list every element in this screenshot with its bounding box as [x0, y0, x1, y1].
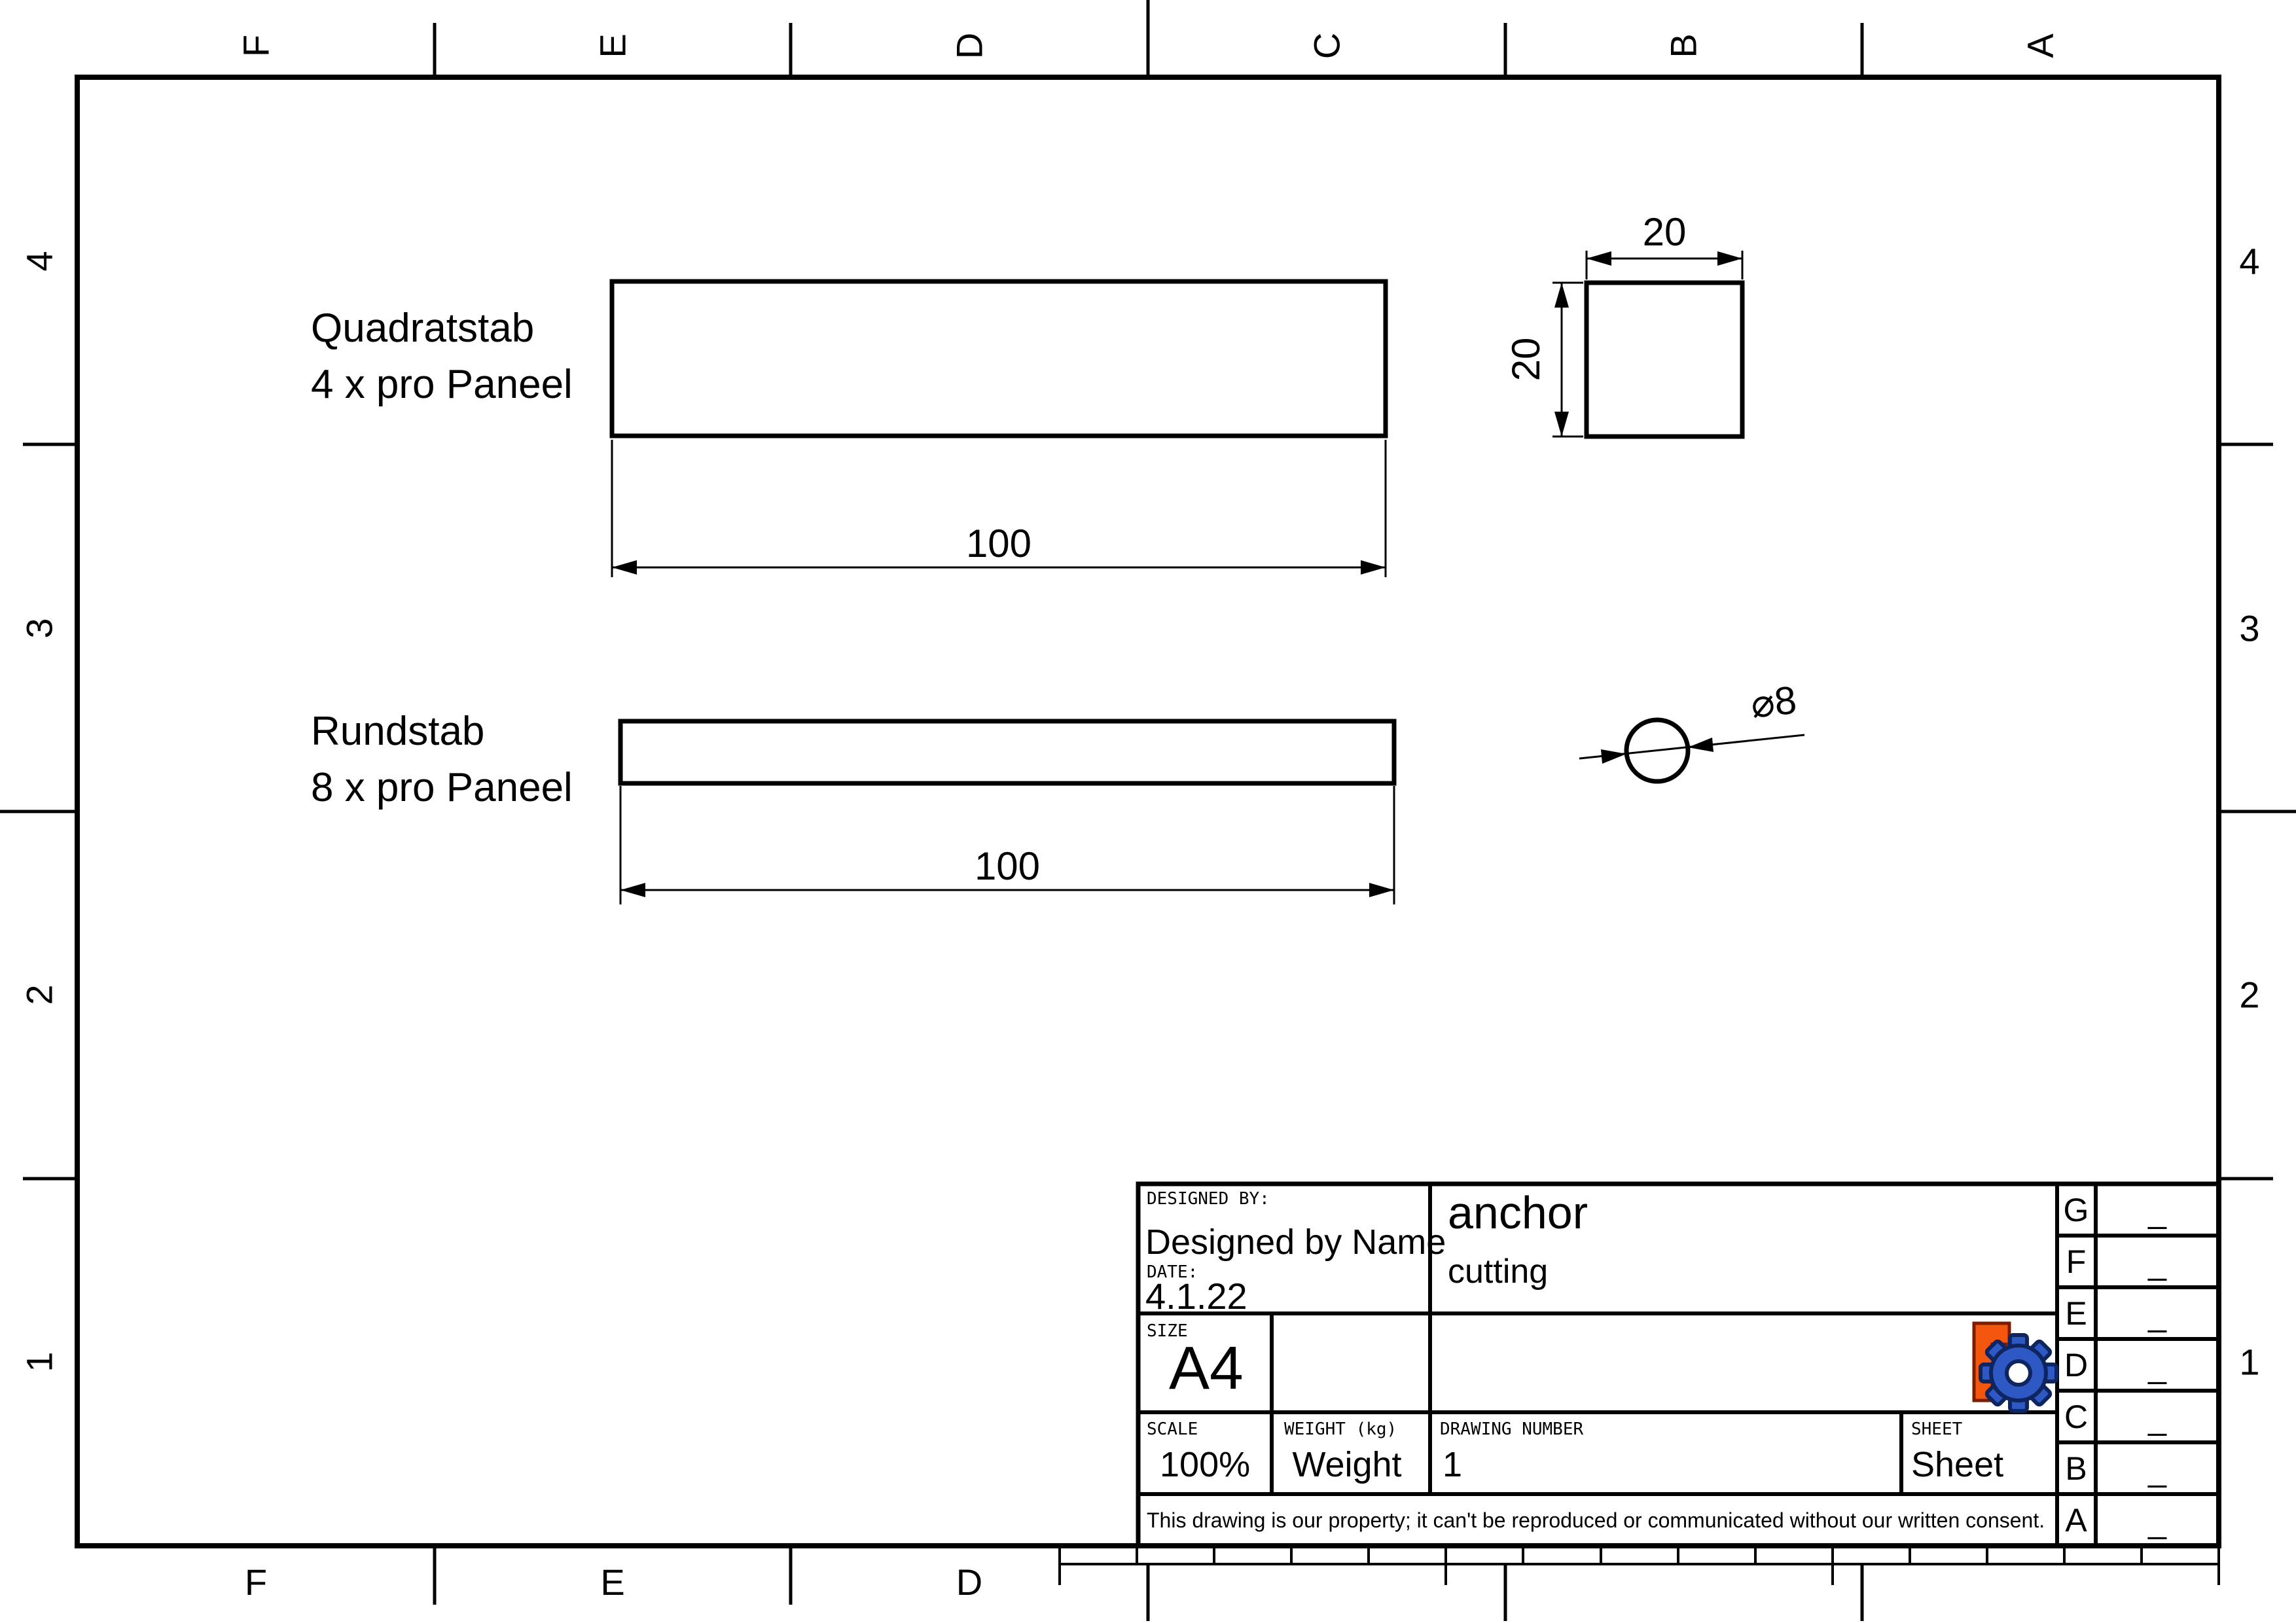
zone-label-right: 3: [2239, 608, 2259, 649]
sheet-frame: F E D C B A F E D 4 3 2 1 4 3 2 1: [0, 0, 2296, 1621]
dim-arrow-right: [1369, 883, 1394, 897]
dim-arrow-right: [1361, 560, 1386, 575]
size-value: A4: [1169, 1334, 1244, 1402]
weight-value: Weight: [1292, 1445, 1401, 1484]
measuring-strip: [1060, 1546, 2219, 1585]
sheet-label: SHEET: [1911, 1419, 1963, 1439]
dim-arrow-right: [1688, 738, 1713, 752]
logo-gear: [1981, 1335, 2056, 1411]
dim-arrow-left: [1601, 749, 1626, 764]
revision-entry: _: [2147, 1245, 2167, 1281]
dim-arrow-left: [1587, 251, 1611, 266]
weight-label: WEIGHT (kg): [1284, 1419, 1397, 1439]
revision-zone: C: [2064, 1399, 2088, 1435]
square-bar-length-dim: 100: [966, 522, 1031, 565]
title-block: DESIGNED BY: Designed by Name DATE: 4.1.…: [1138, 1184, 2219, 1546]
revision-zone: G: [2064, 1192, 2089, 1228]
revision-entry: _: [2147, 1348, 2167, 1385]
zone-label-right: 1: [2239, 1342, 2259, 1383]
designed-by-label: DESIGNED BY:: [1147, 1189, 1270, 1209]
date-value: 4.1.22: [1145, 1275, 1247, 1317]
drawing-title: anchor: [1448, 1187, 1588, 1238]
zone-label-top: F: [236, 35, 277, 57]
revision-zone: F: [2066, 1243, 2087, 1280]
zone-label-top: B: [1663, 33, 1704, 58]
scale-value: 100%: [1160, 1445, 1250, 1484]
zone-label-top: C: [1306, 33, 1348, 59]
zone-label-bottom: F: [245, 1561, 267, 1603]
zone-label-left: 4: [19, 251, 60, 271]
zone-label-left: 2: [19, 984, 60, 1005]
section-height-dim: 20: [1504, 338, 1548, 382]
dim-arrow-bottom: [1554, 412, 1569, 437]
zone-label-right: 4: [2239, 241, 2259, 282]
round-bar-diameter-dim: ⌀8: [1749, 678, 1799, 726]
dim-arrow-right: [1717, 251, 1742, 266]
dim-arrow-left: [620, 883, 645, 897]
disclaimer-text: This drawing is our property; it can't b…: [1147, 1508, 2045, 1532]
square-bar-section-view: [1587, 283, 1742, 437]
sheet-value: Sheet: [1911, 1445, 2003, 1484]
dim-arrow-left: [612, 560, 637, 575]
zone-label-bottom: D: [956, 1561, 982, 1603]
zone-label-top: A: [2020, 33, 2061, 58]
designed-by-value: Designed by Name: [1145, 1222, 1446, 1262]
zone-label-left: 1: [19, 1351, 60, 1372]
revision-zone: E: [2065, 1295, 2087, 1332]
section-width-dim: 20: [1643, 210, 1687, 254]
revision-entry: _: [2147, 1503, 2167, 1540]
revision-entry: _: [2147, 1400, 2167, 1436]
drawing-sheet: F E D C B A F E D 4 3 2 1 4 3 2 1 Quadra…: [0, 0, 2296, 1623]
square-bar-side-view: [612, 281, 1386, 436]
revision-table: G F E D C B A _ _ _ _ _ _ _: [2064, 1192, 2168, 1540]
freecad-logo-icon: [1974, 1323, 2056, 1411]
zone-label-bottom: E: [600, 1561, 624, 1603]
square-bar-label-line2: 4 x pro Paneel: [311, 362, 573, 407]
round-bar-label-line1: Rundstab: [311, 709, 484, 754]
drawing-subtitle: cutting: [1448, 1253, 1548, 1291]
dim-arrow-top: [1554, 283, 1569, 308]
round-bar-view: Rundstab 8 x pro Paneel 100 ⌀8: [311, 678, 1804, 904]
revision-entry: _: [2147, 1296, 2167, 1333]
revision-entry: _: [2147, 1193, 2167, 1230]
zone-label-right: 2: [2239, 974, 2259, 1016]
drawing-number-value: 1: [1443, 1445, 1462, 1484]
revision-zone: A: [2065, 1502, 2087, 1539]
scale-label: SCALE: [1147, 1419, 1198, 1439]
zone-label-top: E: [592, 33, 634, 58]
square-bar-label-line1: Quadratstab: [311, 306, 534, 351]
revision-zone: D: [2064, 1347, 2088, 1383]
zone-label-left: 3: [19, 618, 60, 638]
square-bar-view: Quadratstab 4 x pro Paneel 100 20 20: [311, 210, 1742, 577]
revision-entry: _: [2147, 1452, 2167, 1488]
round-bar-side-view: [620, 721, 1394, 783]
round-bar-length-dim: 100: [975, 844, 1040, 888]
round-bar-label-line2: 8 x pro Paneel: [311, 765, 573, 810]
drawing-number-label: DRAWING NUMBER: [1440, 1419, 1583, 1439]
zone-ticks: [0, 0, 2296, 1621]
revision-zone: B: [2065, 1450, 2087, 1487]
zone-label-top: D: [949, 33, 990, 59]
